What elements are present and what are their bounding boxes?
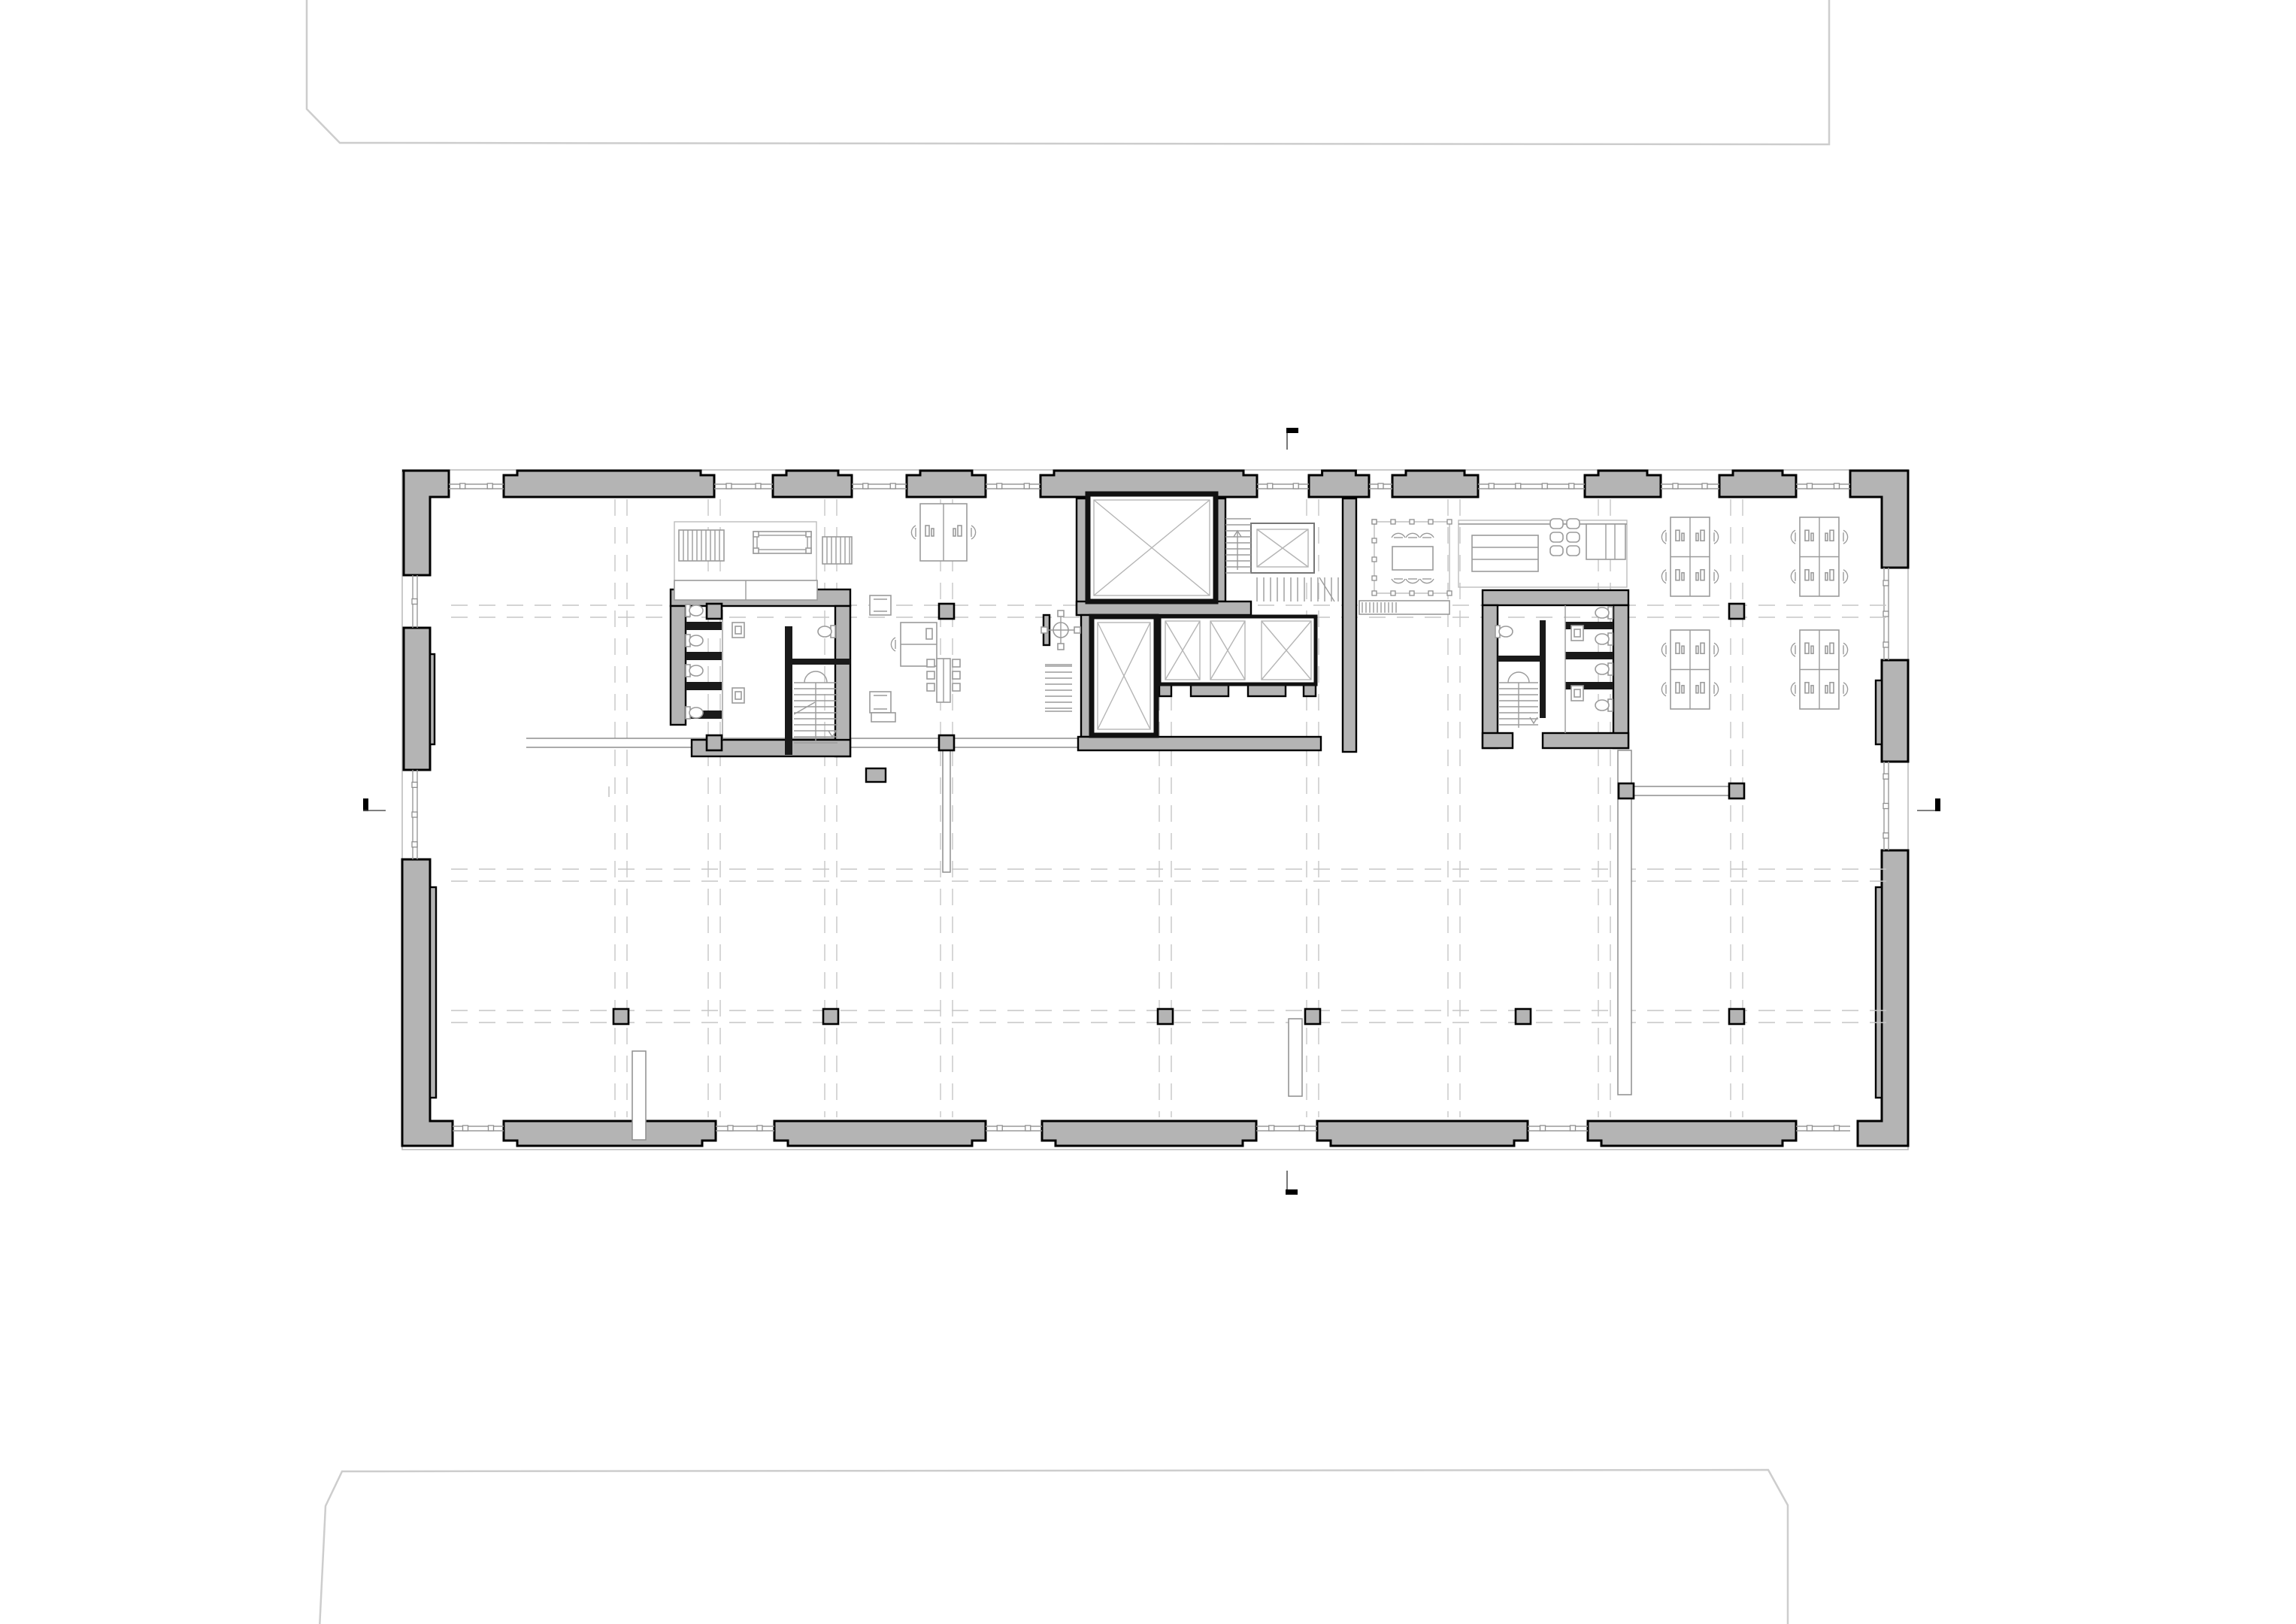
stool-icon [1567, 532, 1580, 542]
toilet-icon [1595, 699, 1613, 711]
floor-plan-page [0, 0, 2296, 1624]
chair-icon [1843, 643, 1848, 656]
section-mark-right [1935, 798, 1940, 811]
sideboard [1359, 601, 1449, 614]
fixture-inner [1574, 629, 1580, 637]
pilaster [504, 471, 714, 497]
toilet-icon [1595, 663, 1613, 675]
toilet-icon [1595, 633, 1613, 645]
wall-segment [1483, 590, 1628, 605]
keyboard-icon [1696, 533, 1698, 541]
mullion-icon [1569, 483, 1574, 489]
mullion-icon [463, 1126, 468, 1131]
monitor-icon [1701, 530, 1704, 541]
keyboard-icon [1811, 686, 1813, 693]
toilet-bowl [1595, 700, 1609, 710]
chair-icon [1843, 530, 1848, 544]
mullion-icon [1489, 483, 1494, 489]
chair-back [1406, 579, 1419, 583]
chair-back [1843, 570, 1848, 583]
chair-back [1714, 683, 1719, 696]
chair-back [1843, 683, 1848, 696]
stool-icon [927, 659, 934, 667]
section-mark-top [1286, 428, 1298, 433]
column [939, 604, 954, 619]
monitor-icon [925, 526, 929, 536]
mullion-icon [460, 483, 465, 489]
fixture-inner [1574, 689, 1580, 697]
chair-icon [1406, 533, 1419, 538]
toilet-icon [686, 707, 703, 719]
toilet-bowl [689, 665, 703, 676]
monitor-icon [1701, 683, 1704, 693]
stair-turn-arc [1508, 672, 1529, 683]
mullion-icon [726, 483, 732, 489]
mullion-icon [1673, 483, 1678, 489]
monitor-icon [1676, 683, 1680, 693]
pilaster [1882, 660, 1908, 762]
column [613, 1009, 629, 1024]
mullion-icon [1807, 1126, 1813, 1131]
chair-icon [1661, 683, 1666, 696]
chair-icon [1406, 579, 1419, 583]
corner-pilaster [402, 859, 453, 1146]
glazing-tick [1372, 538, 1377, 543]
mullion-icon [1269, 1126, 1274, 1131]
wall-segment [1483, 733, 1513, 748]
mullion-icon [1516, 483, 1521, 489]
pilaster-step [1876, 680, 1882, 744]
mullion-icon [997, 1126, 1002, 1131]
toilet-icon [1595, 607, 1613, 619]
chair-icon [1791, 683, 1795, 696]
section-mark-left [363, 798, 368, 811]
keyboard-icon [1811, 573, 1813, 580]
chair-icon [1392, 533, 1405, 538]
glazing-tick [1447, 520, 1452, 524]
pilaster [774, 1121, 986, 1146]
chair-back [1661, 643, 1666, 656]
table-leg [806, 548, 811, 553]
keyboard-icon [1696, 646, 1698, 653]
chair-back [1714, 570, 1719, 583]
keyboard-icon [1811, 646, 1813, 653]
chair-icon [1392, 579, 1405, 583]
pilaster-step [430, 654, 435, 744]
column [707, 735, 722, 750]
chair-icon [1714, 530, 1719, 544]
mullion-icon [1883, 774, 1889, 779]
pilaster [773, 471, 852, 497]
partition-wall [1498, 656, 1546, 662]
wall-segment [835, 606, 850, 756]
toilet-bowl [1595, 634, 1609, 644]
context-buildings [307, 0, 1829, 1624]
partition-wall [785, 626, 792, 755]
monitor-icon [1701, 570, 1704, 580]
keyboard-icon [1682, 646, 1684, 653]
adjacent-building-bottom [320, 1470, 1788, 1624]
corner-pilaster [1850, 471, 1908, 568]
turnstile-pad [1058, 644, 1064, 650]
meeting-table [1392, 547, 1433, 570]
glazing-tick [1391, 591, 1395, 595]
wall-segment [1543, 733, 1628, 748]
mullion-icon [1299, 1126, 1304, 1131]
chair-icon [1843, 570, 1848, 583]
kitchen [1458, 519, 1627, 587]
partition-wall [785, 659, 850, 665]
toilet-bowl [1595, 664, 1609, 674]
wall-segment [1343, 498, 1356, 752]
machine-table [870, 595, 891, 615]
toilet-icon [686, 665, 703, 677]
chair-back [1392, 533, 1405, 538]
column [1729, 1009, 1744, 1024]
partition-wall [686, 622, 722, 630]
mullion-icon [890, 483, 895, 489]
chair-back [911, 526, 916, 539]
column [1158, 1009, 1173, 1024]
chair-back [1714, 643, 1719, 656]
stool-icon [953, 671, 960, 679]
chair-icon [911, 526, 916, 539]
glazing-tick [1372, 557, 1377, 562]
chair-back [1714, 530, 1719, 544]
keyboard-icon [1696, 686, 1698, 693]
stool-icon [953, 659, 960, 667]
chair-icon [1791, 570, 1795, 583]
chair-icon [1420, 533, 1434, 538]
table-leg [753, 532, 759, 537]
monitor-icon [1676, 530, 1680, 541]
partition-wall [1540, 620, 1546, 718]
partition-strip [632, 1051, 646, 1140]
stool-icon [1567, 519, 1580, 529]
monitor-icon [1830, 643, 1834, 653]
keyboard-icon [1682, 686, 1684, 693]
chair-back [1420, 579, 1434, 583]
pilaster [1585, 471, 1661, 497]
mullion-icon [1883, 611, 1889, 617]
monitor-icon [1676, 643, 1680, 653]
chair-icon [971, 526, 976, 539]
chair-back [1661, 530, 1666, 544]
stool-icon [1550, 532, 1563, 542]
keyboard-icon [1682, 573, 1684, 580]
stool-icon [927, 683, 934, 691]
stool-icon [1567, 546, 1580, 556]
floor-plan-canvas [0, 0, 2296, 1624]
partition-wall [1565, 652, 1613, 659]
keyboard-icon [1825, 573, 1828, 580]
thin-walls [526, 738, 1731, 1140]
mullion-icon [1542, 483, 1547, 489]
wall-segment [671, 606, 686, 725]
column [1516, 1009, 1531, 1024]
chair-icon [1843, 683, 1848, 696]
chair-back [1791, 683, 1795, 696]
chair-back [1420, 533, 1434, 538]
column [823, 1009, 838, 1024]
pilaster [907, 471, 986, 497]
turnstile-pad [1041, 627, 1047, 633]
chair-icon [1791, 530, 1795, 544]
partition-wall [686, 682, 722, 690]
mullion-icon [1702, 483, 1707, 489]
chair-back [1843, 643, 1848, 656]
mullion-icon [757, 1126, 762, 1131]
corner-pilaster [1858, 850, 1908, 1146]
monitor-icon [1805, 530, 1809, 541]
stool-icon [1550, 519, 1563, 529]
machine-table [870, 692, 891, 713]
tray-table [871, 713, 895, 722]
turnstile-pad [1074, 627, 1080, 633]
partition-strip [1618, 750, 1631, 1095]
pilaster [504, 1121, 716, 1146]
chair-back [1843, 530, 1848, 544]
pilaster-step [1876, 887, 1882, 1098]
mullion-icon [1883, 642, 1889, 647]
column [1729, 604, 1744, 619]
monitor-icon [1830, 570, 1834, 580]
mullion-icon [1883, 804, 1889, 809]
table-leg [753, 548, 759, 553]
turnstile-pad [1058, 611, 1064, 617]
mullion-icon [412, 599, 417, 604]
chair-icon [1714, 570, 1719, 583]
fixture-inner [735, 692, 741, 699]
monitor-icon [1830, 683, 1834, 693]
monitor-icon [926, 629, 932, 639]
mullion-icon [489, 1126, 494, 1131]
partition-strip [943, 750, 950, 872]
chair-back [1791, 570, 1795, 583]
stool-icon [1550, 546, 1563, 556]
mullion-icon [412, 812, 417, 817]
pilaster [1392, 471, 1478, 497]
pilaster [1309, 471, 1369, 497]
pilaster [1588, 1121, 1796, 1146]
keyboard-icon [1825, 646, 1828, 653]
wall-segment [1613, 605, 1628, 748]
toilet-bowl [818, 626, 831, 637]
monitor-icon [1830, 530, 1834, 541]
chair-back [971, 526, 976, 539]
chair-icon [891, 638, 895, 651]
chair-back [1661, 570, 1666, 583]
mullion-icon [487, 483, 492, 489]
keyboard-icon [953, 529, 956, 536]
corner-pilaster [402, 471, 449, 575]
chair-back [1791, 530, 1795, 544]
column [1729, 783, 1744, 798]
wall-segment [866, 768, 886, 782]
toilet-icon [1495, 626, 1513, 638]
kitchen-island [1472, 535, 1538, 571]
mullion-icon [1268, 483, 1273, 489]
stool-icon [927, 671, 934, 679]
meeting-room [1359, 520, 1452, 614]
stair-arrow-icon [1530, 717, 1537, 723]
glazing-tick [1447, 591, 1452, 595]
toilet-bowl [1499, 626, 1513, 637]
monitor-icon [1805, 643, 1809, 653]
glazing-tick [1428, 591, 1433, 595]
keyboard-icon [1682, 533, 1684, 541]
chair-icon [1661, 570, 1666, 583]
adjacent-building-top [307, 0, 1829, 144]
toilet-bowl [689, 635, 703, 646]
stair-turn-arc [804, 671, 827, 683]
mullion-icon [1293, 483, 1298, 489]
monitor-icon [958, 526, 962, 536]
mullion-icon [1834, 483, 1840, 489]
keyboard-icon [1811, 533, 1813, 541]
chair-back [1406, 533, 1419, 538]
chair-back [891, 638, 895, 651]
monitor-icon [1701, 643, 1704, 653]
toilet-bowl [689, 605, 703, 616]
chair-icon [1661, 530, 1666, 544]
column [939, 735, 954, 750]
chair-icon [1791, 643, 1795, 656]
mullion-icon [1540, 1126, 1546, 1131]
mullion-icon [412, 782, 417, 787]
chair-back [1791, 643, 1795, 656]
toilet-bowl [689, 707, 703, 718]
glazing-tick [1410, 591, 1414, 595]
chair-icon [1420, 579, 1434, 583]
mullion-icon [1807, 483, 1813, 489]
table-leg [806, 532, 811, 537]
column [707, 604, 722, 619]
mullion-icon [756, 483, 761, 489]
keyboard-icon [1825, 686, 1828, 693]
column [1305, 1009, 1320, 1024]
mullion-icon [1571, 1126, 1576, 1131]
toilet-bowl [1595, 607, 1609, 618]
partition-strip [1289, 1019, 1302, 1096]
toilet-icon [818, 626, 835, 638]
mullion-icon [1378, 483, 1383, 489]
shafts [1088, 494, 1316, 735]
mullion-icon [1025, 1126, 1031, 1131]
fixture-inner [735, 626, 741, 634]
mullion-icon [412, 842, 417, 847]
chair-icon [1714, 643, 1719, 656]
stool-icon [953, 683, 960, 691]
glazing-tick [1428, 520, 1433, 524]
keyboard-icon [931, 529, 934, 536]
pilaster [1042, 1121, 1256, 1146]
monitor-icon [1805, 683, 1809, 693]
pilaster [1317, 1121, 1528, 1146]
pilaster [1719, 471, 1796, 497]
keyboard-icon [1825, 533, 1828, 541]
chair-icon [1714, 683, 1719, 696]
mullion-icon [728, 1126, 733, 1131]
mullion-icon [1024, 483, 1029, 489]
glazing-tick [1372, 591, 1377, 595]
monitor-icon [1676, 570, 1680, 580]
keyboard-icon [1696, 573, 1698, 580]
chair-icon [1661, 643, 1666, 656]
chair-back [1661, 683, 1666, 696]
mullion-icon [1834, 1126, 1840, 1131]
chair-back [1392, 579, 1405, 583]
mullion-icon [997, 483, 1002, 489]
toilet-icon [686, 604, 703, 617]
mullion-icon [863, 483, 868, 489]
wall-segment [1078, 737, 1321, 750]
glazing-tick [1410, 520, 1414, 524]
monitor-icon [1805, 570, 1809, 580]
stair-line [1319, 577, 1334, 601]
mullion-icon [1883, 833, 1889, 838]
toilet-icon [686, 635, 703, 647]
partition-wall [686, 652, 722, 660]
pilaster-step [430, 887, 436, 1098]
pilaster [404, 628, 430, 770]
glazing-tick [1372, 576, 1377, 580]
glazing-tick [1372, 520, 1377, 524]
mullion-icon [1883, 580, 1889, 586]
section-mark-bottom [1286, 1189, 1298, 1195]
column [1619, 783, 1634, 798]
glazing-tick [1391, 520, 1395, 524]
